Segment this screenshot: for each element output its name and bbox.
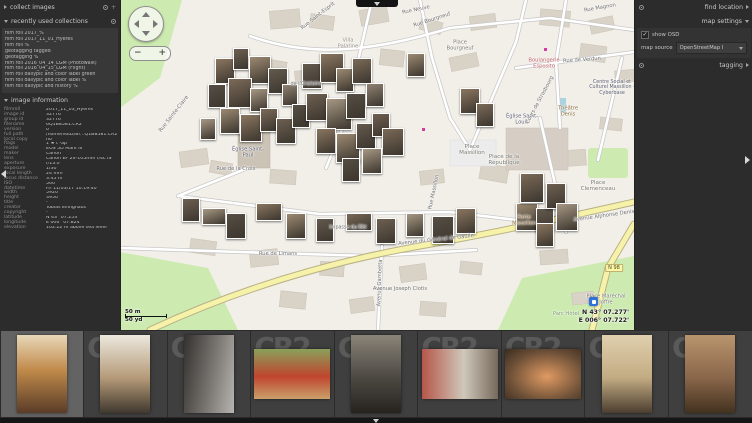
map-label: Porte Massillon bbox=[506, 215, 542, 226]
scale-meters: 50 m bbox=[125, 309, 167, 316]
photo-thumbnail[interactable] bbox=[254, 349, 330, 399]
photo-thumbnail[interactable] bbox=[351, 335, 401, 413]
photo-thumbnail[interactable] bbox=[685, 335, 735, 413]
filmstrip-thumbnail-street-with-blue-banner[interactable]: CR2 bbox=[84, 331, 167, 417]
filmstrip-thumbnail-street-people-chalkboard[interactable]: CR2 bbox=[335, 331, 418, 417]
map-label: de l'Oratoire bbox=[290, 81, 321, 87]
right-panel: find location map settings ✓ show OSD ma… bbox=[634, 0, 752, 330]
info-value: 6Q1B8581.CR2 bbox=[46, 123, 82, 128]
panel-title: map settings bbox=[702, 18, 742, 25]
photo-thumbnail[interactable] bbox=[184, 335, 234, 413]
filmstrip-thumbnail-tall-building-archway[interactable]: CR2 bbox=[585, 331, 668, 417]
road-ref-badge: N 98 bbox=[605, 264, 623, 272]
zoom-in-button[interactable]: + bbox=[158, 48, 166, 59]
panel-header-image-information[interactable]: image information bbox=[0, 93, 120, 107]
map-label: Avenue Joseph Clotis bbox=[373, 286, 427, 292]
photo-thumbnail[interactable] bbox=[422, 349, 498, 399]
gear-icon[interactable] bbox=[639, 63, 644, 68]
map-label: Centre Social et Culturel Massillon - Cy… bbox=[588, 80, 634, 96]
map-label: Place Massillon bbox=[453, 144, 491, 156]
map-label: Boulangerie Esposito bbox=[523, 58, 565, 69]
recent-collections-list: film roll 2017_%film roll 2017_11_01_Hyè… bbox=[2, 28, 118, 93]
map-label: Place Bourgneuf bbox=[444, 40, 476, 51]
map-source-value: OpenStreetMap I bbox=[680, 45, 737, 51]
chevron-down-icon bbox=[373, 419, 379, 423]
map-label: Rue de Verdun bbox=[563, 56, 601, 65]
map-label: Place Clemenceau bbox=[576, 180, 620, 192]
panel-header-find-location[interactable]: find location bbox=[635, 0, 752, 14]
panel-header-tagging[interactable]: tagging bbox=[635, 58, 752, 72]
map-label: Théâtre Denis bbox=[552, 106, 584, 117]
info-label: elevation bbox=[2, 226, 46, 231]
presets-icon[interactable]: + bbox=[111, 5, 116, 10]
chevron-down-icon bbox=[739, 47, 743, 50]
panel-header-recent-collections[interactable]: recently used collections bbox=[0, 14, 120, 28]
left-panel: collect images + recently used collectio… bbox=[0, 0, 121, 330]
map-label: Rue Massillon bbox=[427, 174, 440, 210]
photo-thumbnail[interactable] bbox=[100, 335, 150, 413]
map-label: Rue Saint-Esprit bbox=[300, 1, 336, 31]
image-information-table: filmroll2017_11_03_Hyèresimage id32776gr… bbox=[2, 108, 118, 231]
filmstrip-thumbnail-street-red-house[interactable]: CR2 bbox=[418, 331, 501, 417]
map-view[interactable]: Rue NeuveRue Saint-EspritRue BourgneufPl… bbox=[120, 0, 634, 330]
collection-item[interactable]: film roll dailypic and history % bbox=[5, 84, 115, 90]
map-label: Église Saint-Paul bbox=[229, 147, 267, 158]
gear-icon[interactable] bbox=[111, 19, 116, 24]
map-label: Rue Neuve bbox=[402, 4, 431, 16]
panel-header-collect-images[interactable]: collect images + bbox=[0, 0, 120, 14]
info-value: 3950 bbox=[46, 196, 58, 201]
expander-icon bbox=[745, 20, 749, 23]
map-label: Rue de la Croix bbox=[216, 166, 255, 172]
show-osd-checkbox[interactable]: ✓ bbox=[641, 31, 649, 39]
map-label-layer: Rue NeuveRue Saint-EspritRue BourgneufPl… bbox=[120, 0, 634, 330]
map-coordinates-osd: N 43° 07.277' E 006° 07.722' bbox=[579, 309, 629, 325]
filmstrip-thumbnail-stone-arch-entrance[interactable]: CR2 bbox=[669, 331, 752, 417]
gear-icon[interactable] bbox=[639, 5, 644, 10]
zoom-out-button[interactable]: − bbox=[134, 48, 142, 59]
photo-thumbnail[interactable] bbox=[602, 335, 652, 413]
scale-yards: 50 yd bbox=[125, 317, 167, 324]
map-label: Rue de Limans bbox=[259, 251, 297, 257]
expander-icon bbox=[746, 5, 749, 9]
photo-thumbnail[interactable] bbox=[17, 335, 67, 413]
panel-title: collect images bbox=[10, 4, 55, 11]
expander-icon bbox=[746, 63, 749, 67]
filmstrip-thumbnail-basket-of-shrimp[interactable]: CR2 bbox=[502, 331, 585, 417]
map-label: Avenue Alphonse Denis bbox=[573, 209, 634, 223]
osd-longitude: E 006° 07.722' bbox=[579, 317, 629, 325]
map-label: Église Saint-Louis bbox=[501, 114, 543, 125]
info-value: Tobias Ellinghaus bbox=[46, 206, 86, 211]
map-label: Rue Magnon bbox=[584, 2, 617, 14]
left-panel-collapse-handle[interactable] bbox=[1, 170, 6, 178]
filmstrip-thumbnail-wet-alley-shops[interactable]: CR2 bbox=[168, 331, 251, 417]
filmstrip-thumbnail-narrow-street-yellow-buildings[interactable] bbox=[1, 331, 84, 417]
pan-down-icon[interactable] bbox=[142, 31, 150, 36]
info-row: elevation102.22 m above sea level bbox=[2, 226, 118, 231]
pan-left-icon[interactable] bbox=[134, 20, 139, 28]
info-value: /home/houz/Bi…Q1B8581.CR2 bbox=[46, 133, 117, 138]
expander-icon bbox=[4, 5, 7, 9]
map-label: Avenue du Général de Gaulle bbox=[398, 233, 474, 247]
panel-header-map-settings[interactable]: map settings bbox=[635, 14, 752, 28]
expander-icon bbox=[4, 99, 8, 102]
panel-title: tagging bbox=[719, 62, 743, 69]
map-label: Impasse du Bât bbox=[329, 226, 366, 231]
map-scale: 50 m 50 yd bbox=[125, 309, 167, 324]
map-zoom-control[interactable]: − + bbox=[129, 46, 171, 61]
map-label: Rue Bourgneuf bbox=[413, 11, 451, 29]
osd-latitude: N 43° 07.277' bbox=[579, 309, 629, 317]
map-label: Parc Hôtel bbox=[552, 312, 580, 318]
map-settings-content: ✓ show OSD map source OpenStreetMap I bbox=[637, 28, 751, 58]
map-label: Villa Palatine bbox=[333, 38, 363, 49]
chevron-down-icon bbox=[374, 2, 380, 6]
right-panel-collapse-handle[interactable] bbox=[745, 156, 750, 164]
panel-title: recently used collections bbox=[11, 18, 88, 25]
scale-bar bbox=[125, 316, 167, 317]
map-pan-control[interactable] bbox=[128, 6, 164, 42]
panel-title: image information bbox=[11, 97, 68, 104]
filmstrip[interactable]: CR2CR2CR2CR2CR2CR2CR2CR2 bbox=[0, 330, 752, 418]
map-label: Cours de Strasbourg bbox=[525, 75, 555, 125]
gear-icon[interactable] bbox=[103, 5, 108, 10]
top-panel-handle[interactable] bbox=[356, 0, 398, 7]
show-osd-label: show OSD bbox=[652, 32, 679, 38]
map-source-dropdown[interactable]: OpenStreetMap I bbox=[676, 42, 747, 54]
info-value: 102.22 m above sea level bbox=[46, 226, 107, 231]
map-center-icon[interactable] bbox=[589, 297, 598, 306]
pan-right-icon[interactable] bbox=[153, 20, 158, 28]
map-label: Rue Sainte-Claire bbox=[158, 95, 190, 134]
expander-icon bbox=[4, 20, 8, 23]
bottom-panel-handle[interactable] bbox=[0, 418, 752, 423]
pan-up-icon[interactable] bbox=[142, 12, 150, 17]
map-label: Avenue Gambetta bbox=[376, 259, 384, 306]
map-label: Place de la République bbox=[479, 154, 529, 166]
photo-thumbnail[interactable] bbox=[505, 349, 581, 399]
panel-title: find location bbox=[705, 4, 743, 11]
filmstrip-thumbnail-market-produce-stall[interactable]: CR2 bbox=[251, 331, 334, 417]
map-source-label: map source bbox=[641, 45, 673, 51]
